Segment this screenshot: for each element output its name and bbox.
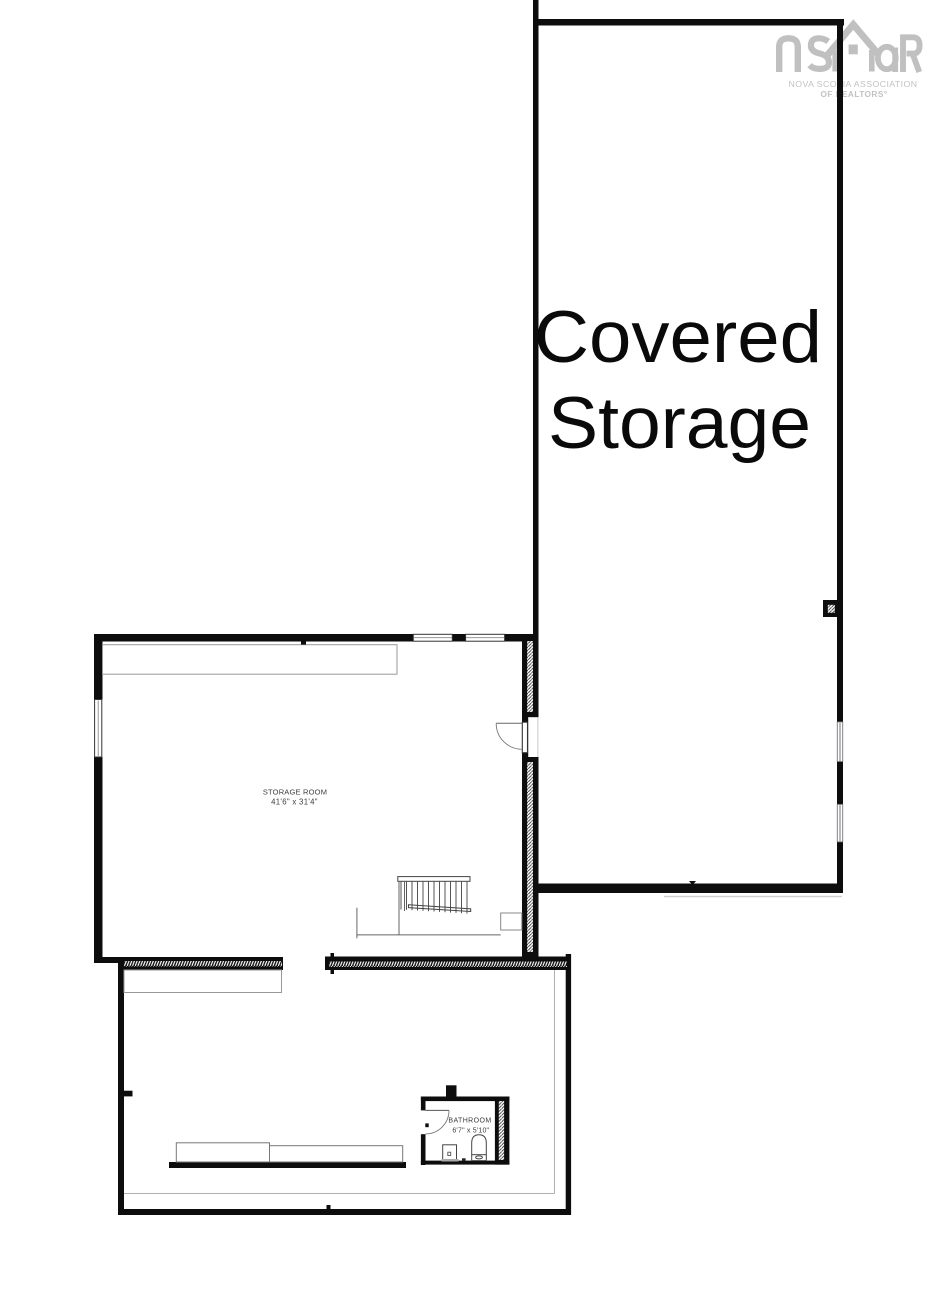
svg-text:NOVA SCOTIA ASSOCIATION: NOVA SCOTIA ASSOCIATION bbox=[789, 80, 918, 89]
svg-text:BATHROOM: BATHROOM bbox=[448, 1117, 491, 1124]
svg-text:STORAGE ROOM: STORAGE ROOM bbox=[263, 788, 327, 797]
svg-text:41'6" x 31'4": 41'6" x 31'4" bbox=[271, 798, 318, 807]
svg-text:6'7" x 5'10": 6'7" x 5'10" bbox=[452, 1127, 489, 1134]
svg-text:Storage: Storage bbox=[548, 383, 811, 464]
svg-text:OF REALTORS°: OF REALTORS° bbox=[821, 90, 888, 99]
svg-text:Covered: Covered bbox=[534, 297, 822, 378]
